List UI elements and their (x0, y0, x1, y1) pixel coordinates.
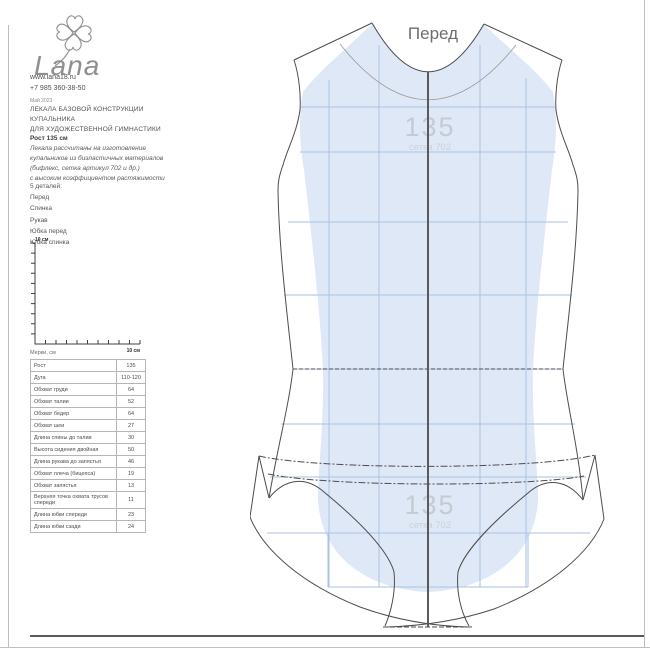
measure-value: 13 (117, 480, 146, 492)
text-line: Лекала рассчитаны на изготовление (30, 144, 200, 154)
clover-icon: Lana (34, 16, 100, 81)
text-line: Спинка (30, 203, 69, 214)
measure-row: Длина рукава до запястья46 (31, 456, 146, 468)
measure-row: Обхват талии52 (31, 396, 146, 408)
measure-value: 24 (117, 521, 146, 533)
measure-label: Дуга (31, 372, 117, 384)
measure-value: 23 (117, 509, 146, 521)
measure-row: Обхват шеи27 (31, 420, 146, 432)
text-line: купальников из биэластичных материалов (30, 154, 200, 164)
measure-row: Обхват бедер64 (31, 408, 146, 420)
text-line: ЛЕКАЛА БАЗОВОЙ КОНСТРУКЦИИ (30, 105, 200, 115)
watermark-lower: 135 сетка 702 (404, 490, 455, 531)
measure-row: Обхват плеча (бицепса)19 (31, 468, 146, 480)
measure-value: 110-120 (117, 372, 146, 384)
measure-label: Длина рукава до запястья (31, 456, 117, 468)
measurements-heading: Мерки, см (30, 350, 148, 356)
pattern-sheet-page: Lana www.lana18.ru +7 985 360-38-50 Май … (0, 0, 650, 650)
measure-value: 19 (117, 468, 146, 480)
text-line: Рукав (30, 215, 69, 226)
measure-value: 46 (117, 456, 146, 468)
measure-value: 11 (117, 492, 146, 509)
measure-label: Обхват талии (31, 396, 117, 408)
measure-row: Длина спины до талии30 (31, 432, 146, 444)
watermark-fabric: сетка 702 (409, 520, 451, 531)
text-line: (бифлекс, сетка артикул 702 и др.) (30, 164, 200, 174)
measure-label: Рост (31, 360, 117, 372)
measure-row: Верхняя точка охвата трусов спереди11 (31, 492, 146, 509)
phone-number: +7 985 360-38-50 (30, 84, 85, 95)
text-line: ДЛЯ ХУДОЖЕСТВЕННОЙ ГИМНАСТИКИ (30, 125, 200, 135)
document-title: ЛЕКАЛА БАЗОВОЙ КОНСТРУКЦИИКУПАЛЬНИКАДЛЯ … (30, 105, 200, 134)
scale-ruler: 10 см 10 см (28, 236, 148, 356)
measure-label: Длина юбки сзади (31, 521, 117, 533)
measure-row: Обхват груди64 (31, 384, 146, 396)
height-label: Рост 135 см (30, 134, 200, 144)
brand-logo: Lana (28, 12, 138, 82)
measure-label: Длина спины до талии (31, 432, 117, 444)
date-label: Май 2023 (30, 97, 200, 105)
text-line: КУПАЛЬНИКА (30, 115, 200, 125)
measure-label: Обхват запястья (31, 480, 117, 492)
measure-row: Длина юбки спереди23 (31, 509, 146, 521)
measure-row: Высота сидения двойная50 (31, 444, 146, 456)
description-text: Лекала рассчитаны на изготовлениекупальн… (30, 144, 200, 183)
details-heading: 5 деталей: (30, 181, 69, 192)
pattern-drawing: 135 сетка 702 135 сетка 702 (250, 10, 650, 642)
measure-row: Длина юбки сзади24 (31, 521, 146, 533)
measure-row: Дуга110-120 (31, 372, 146, 384)
watermark-size: 135 (404, 112, 455, 142)
measure-label: Обхват шеи (31, 420, 117, 432)
measure-value: 52 (117, 396, 146, 408)
measure-value: 64 (117, 408, 146, 420)
measure-value: 27 (117, 420, 146, 432)
page-border-left (8, 25, 9, 647)
measure-label: Обхват плеча (бицепса) (31, 468, 117, 480)
page-edge-bottom (0, 647, 650, 648)
measure-value: 135 (117, 360, 146, 372)
side-seam-right (556, 60, 583, 500)
text-line: Перед (30, 192, 69, 203)
side-seam-left (269, 60, 300, 498)
measure-label: Высота сидения двойная (31, 444, 117, 456)
measure-row: Обхват запястья13 (31, 480, 146, 492)
watermark-size: 135 (404, 490, 455, 520)
ruler-axes (31, 243, 140, 344)
measure-value: 64 (117, 384, 146, 396)
measure-value: 30 (117, 432, 146, 444)
measurements-block: Мерки, см Рост135Дуга110-120Обхват груди… (30, 350, 148, 533)
measure-label: Верхняя точка охвата трусов спереди (31, 492, 117, 509)
contact-block: www.lana18.ru +7 985 360-38-50 (30, 73, 85, 94)
measure-label: Длина юбки спереди (31, 509, 117, 521)
measure-label: Обхват груди (31, 384, 117, 396)
watermark-upper: 135 сетка 702 (404, 112, 455, 153)
ruler-vertical-label: 10 см (35, 237, 49, 243)
website-link[interactable]: www.lana18.ru (30, 73, 85, 84)
measure-label: Обхват бедер (31, 408, 117, 420)
watermark-fabric: сетка 702 (409, 142, 451, 153)
measurements-table: Рост135Дуга110-120Обхват груди64Обхват т… (30, 359, 146, 533)
pattern-info-block: Май 2023 ЛЕКАЛА БАЗОВОЙ КОНСТРУКЦИИКУПАЛ… (30, 97, 200, 183)
measure-value: 50 (117, 444, 146, 456)
piece-title: Перед (408, 24, 458, 43)
measure-row: Рост135 (31, 360, 146, 372)
